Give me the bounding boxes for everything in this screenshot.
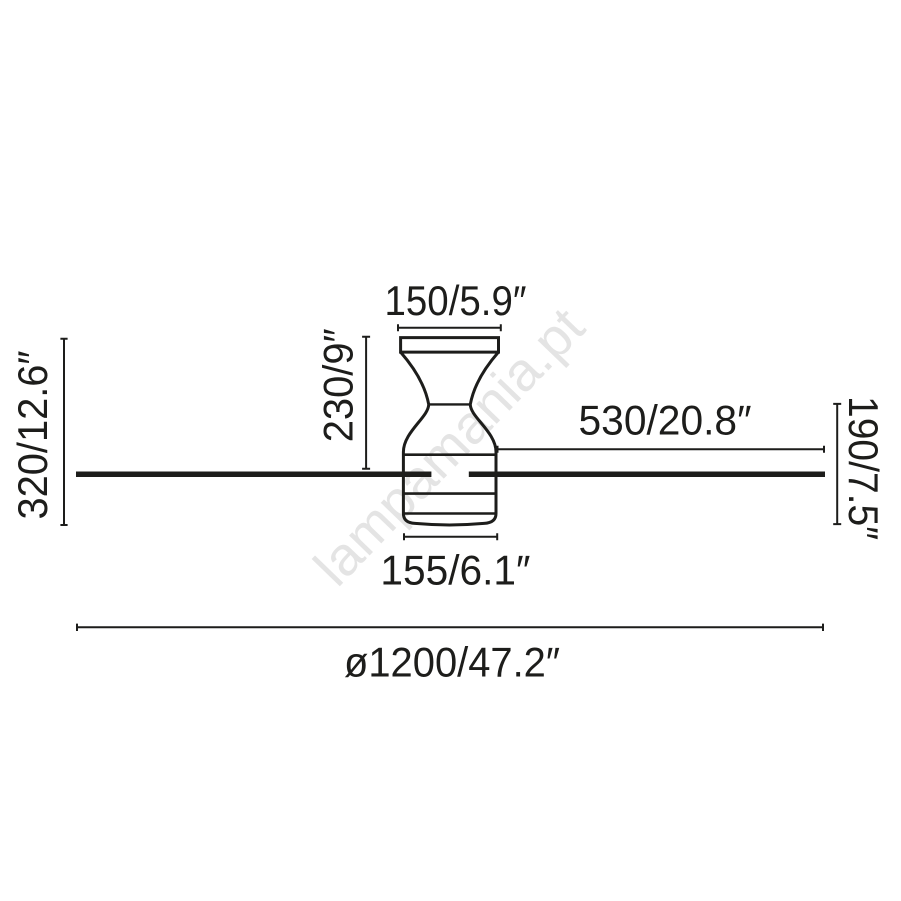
svg-text:155/6.1″: 155/6.1″ xyxy=(380,547,530,594)
svg-text:190/7.5″: 190/7.5″ xyxy=(840,396,887,540)
svg-text:ø1200/47.2″: ø1200/47.2″ xyxy=(344,638,560,685)
svg-text:150/5.9″: 150/5.9″ xyxy=(385,277,527,324)
svg-text:230/9″: 230/9″ xyxy=(314,328,361,442)
svg-text:320/12.6″: 320/12.6″ xyxy=(9,350,56,519)
svg-text:530/20.8″: 530/20.8″ xyxy=(579,397,752,444)
